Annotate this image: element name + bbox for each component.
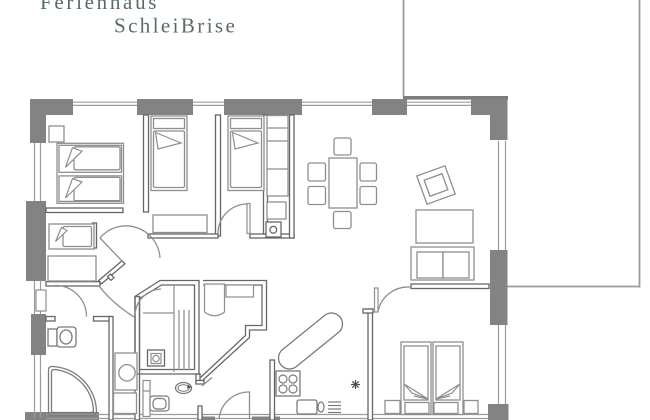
svg-text:Ferienhaus: Ferienhaus: [40, 0, 159, 14]
svg-text:SchleiBrise: SchleiBrise: [114, 14, 237, 38]
